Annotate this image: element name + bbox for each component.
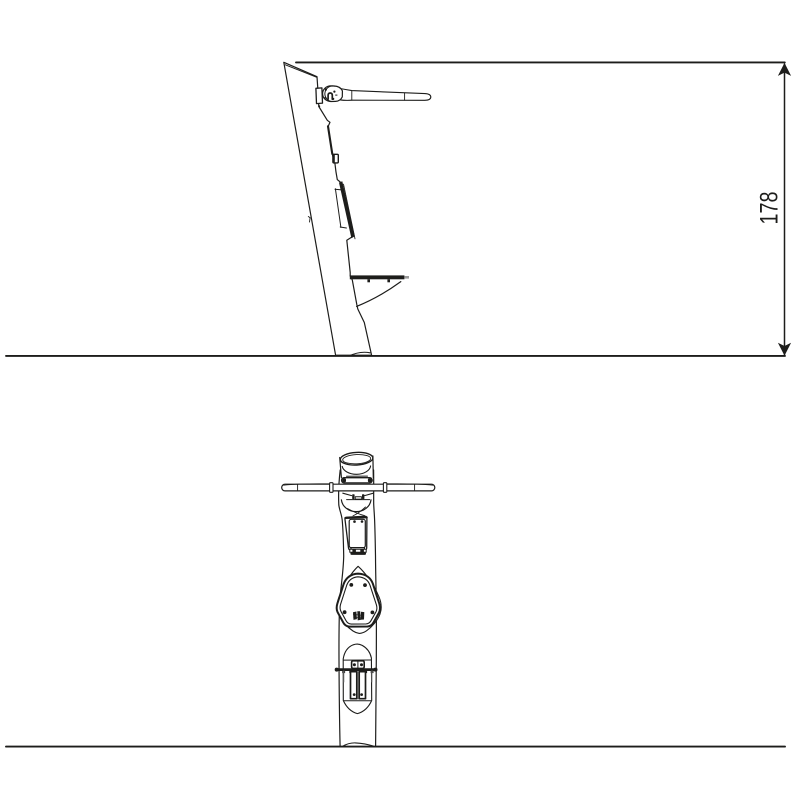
svg-text:178: 178 xyxy=(756,192,784,225)
